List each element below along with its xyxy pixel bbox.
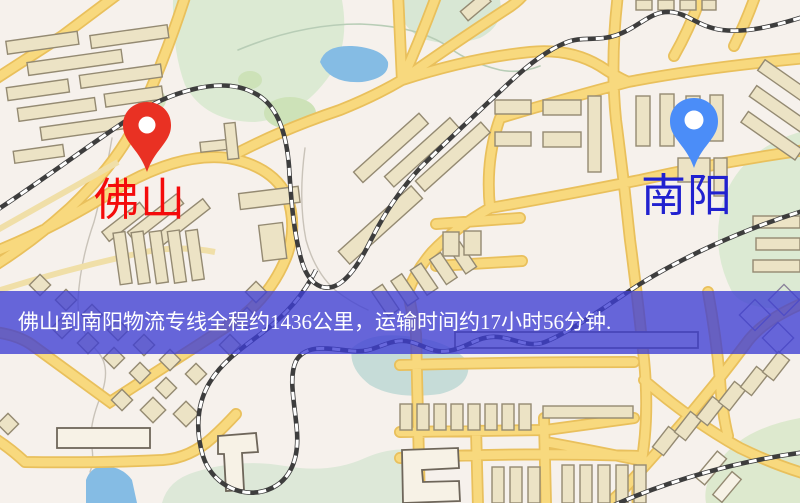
route-info-banner: 佛山到南阳物流专线全程约1436公里，运输时间约17小时56分钟. <box>0 291 800 354</box>
destination-city-label: 南阳 <box>641 174 733 219</box>
map-canvas <box>0 0 800 503</box>
origin-city-label: 佛山 <box>94 178 186 223</box>
route-info-text: 佛山到南阳物流专线全程约1436公里，运输时间约17小时56分钟. <box>18 310 611 334</box>
map-screenshot: 佛山到南阳物流专线全程约1436公里，运输时间约17小时56分钟. 佛山 南阳 <box>0 0 800 503</box>
